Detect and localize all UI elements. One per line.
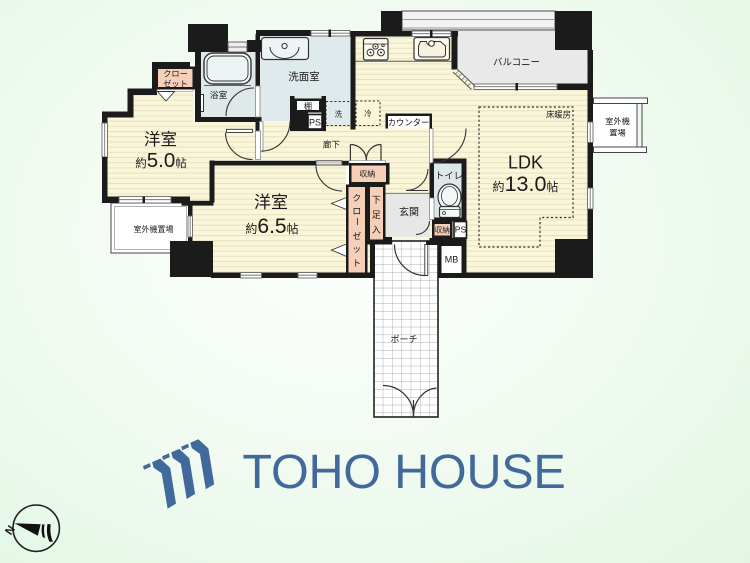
- svg-text:ト: ト: [352, 258, 361, 268]
- svg-text:N: N: [3, 524, 18, 538]
- svg-text:クロー: クロー: [163, 69, 188, 78]
- svg-text:下: 下: [372, 195, 381, 205]
- svg-text:ー: ー: [352, 217, 362, 226]
- svg-text:ゼット: ゼット: [163, 78, 188, 88]
- svg-text:ポーチ: ポーチ: [390, 335, 417, 345]
- svg-text:カウンター: カウンター: [388, 117, 430, 127]
- svg-text:棚: 棚: [304, 101, 312, 111]
- svg-text:洗面室: 洗面室: [288, 70, 320, 83]
- svg-text:PS: PS: [455, 225, 467, 235]
- svg-text:入: 入: [372, 225, 381, 235]
- svg-text:洋室: 洋室: [254, 193, 288, 212]
- svg-text:足: 足: [372, 210, 381, 220]
- svg-text:室外機置場: 室外機置場: [134, 224, 174, 234]
- svg-text:ゼ: ゼ: [352, 230, 361, 241]
- svg-text:玄関: 玄関: [399, 206, 419, 219]
- svg-text:PS: PS: [309, 118, 321, 128]
- svg-text:LDK: LDK: [508, 153, 543, 173]
- svg-text:洋室: 洋室: [144, 130, 177, 149]
- svg-text:置場: 置場: [609, 128, 625, 138]
- svg-text:TOHO HOUSE: TOHO HOUSE: [242, 445, 565, 499]
- svg-text:バルコニー: バルコニー: [493, 57, 540, 68]
- svg-text:ッ: ッ: [352, 244, 361, 254]
- svg-text:MB: MB: [445, 255, 459, 265]
- svg-text:収納: 収納: [359, 169, 375, 179]
- svg-text:床暖房: 床暖房: [546, 110, 571, 120]
- svg-text:トイレ: トイレ: [435, 170, 463, 181]
- svg-text:収納: 収納: [435, 225, 450, 235]
- svg-text:室外機: 室外機: [605, 116, 630, 126]
- svg-text:ロ: ロ: [352, 206, 361, 216]
- svg-text:廊下: 廊下: [323, 139, 341, 150]
- svg-text:浴室: 浴室: [210, 89, 228, 100]
- svg-text:洗: 洗: [335, 110, 343, 119]
- svg-text:ク: ク: [352, 193, 361, 203]
- svg-text:冷: 冷: [364, 109, 372, 118]
